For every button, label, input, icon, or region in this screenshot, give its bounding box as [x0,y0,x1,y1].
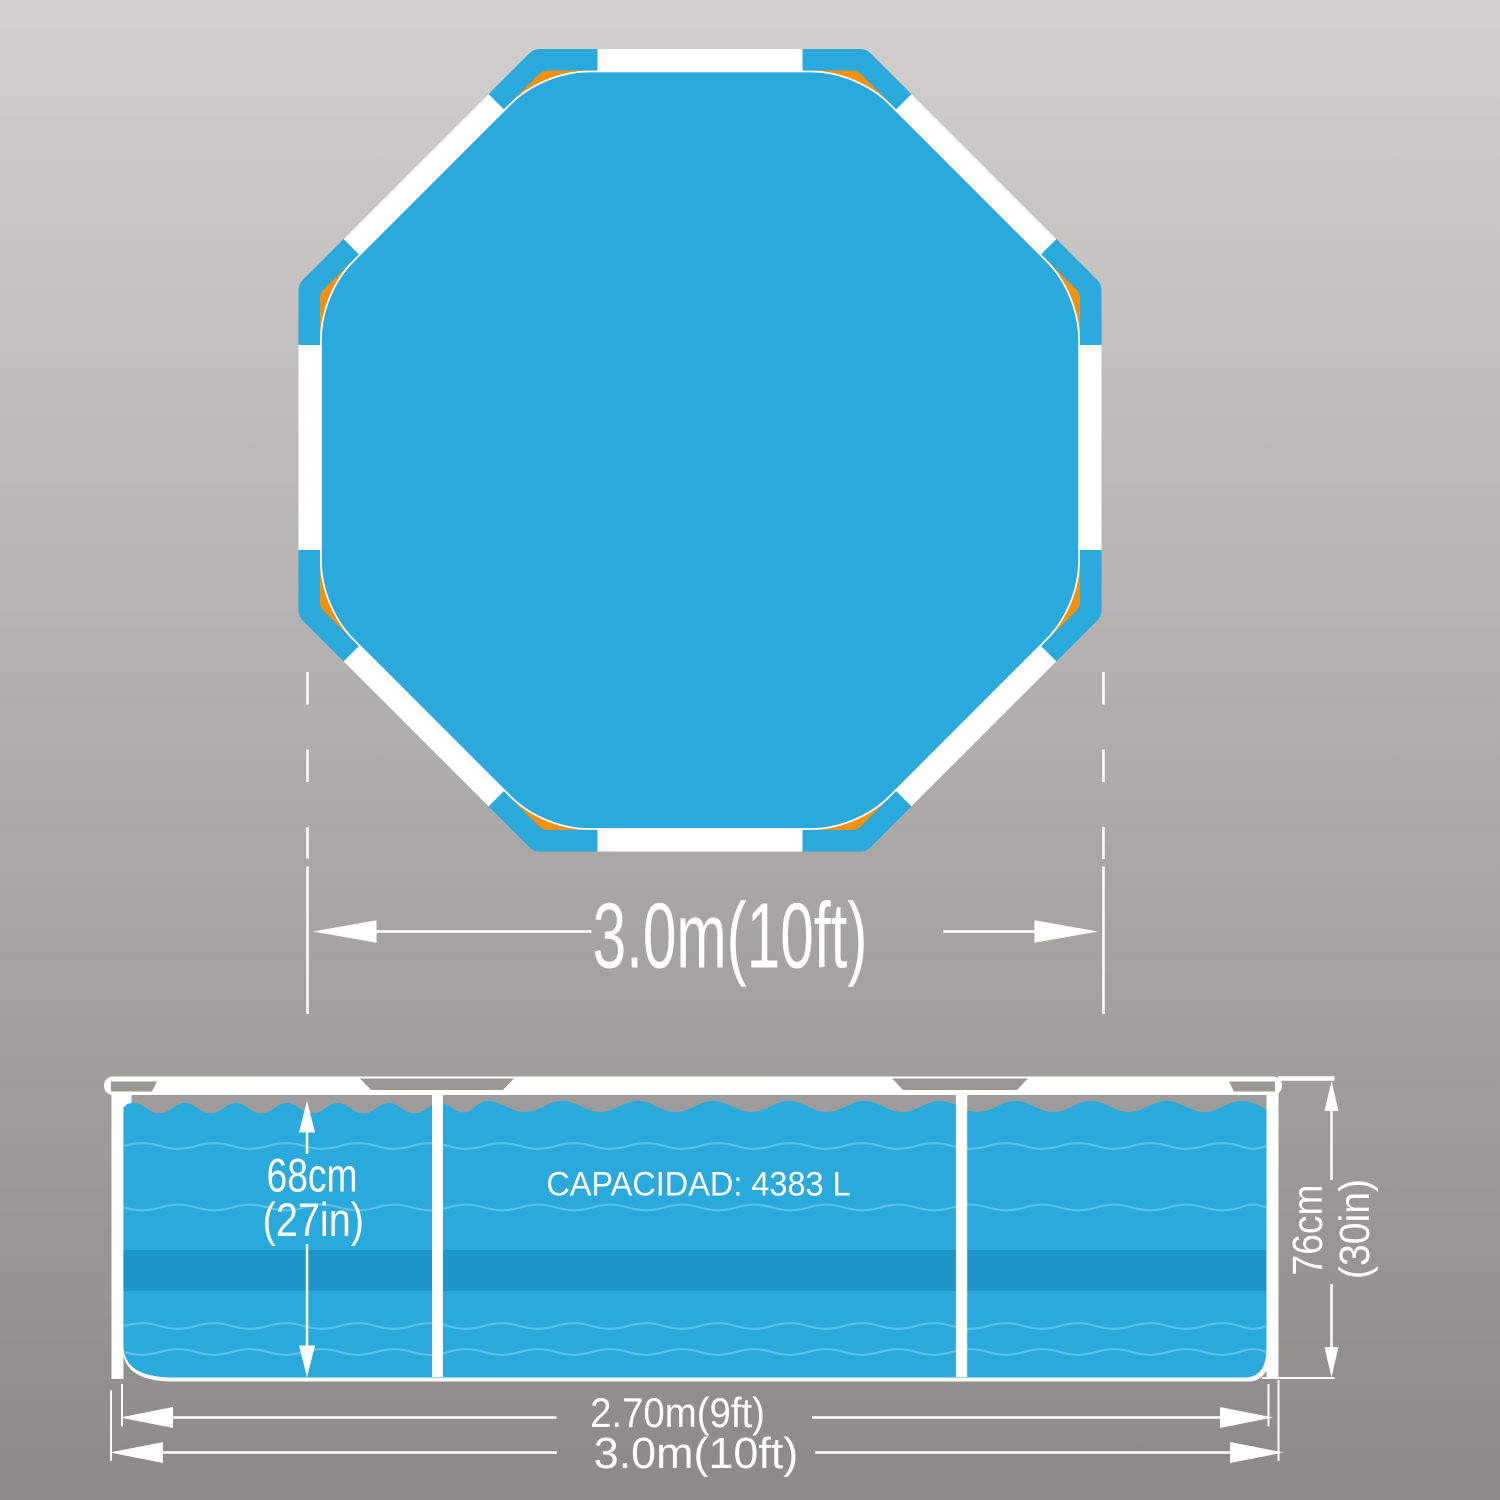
svg-text:3.0m(10ft): 3.0m(10ft) [593,883,868,987]
svg-text:76cm: 76cm [1285,1185,1332,1276]
svg-text:CAPACIDAD: 4383 L: CAPACIDAD: 4383 L [546,1165,850,1203]
svg-text:(30in): (30in) [1331,1179,1379,1279]
svg-text:(27in): (27in) [263,1194,364,1247]
svg-text:3.0m(10ft): 3.0m(10ft) [594,1429,799,1478]
